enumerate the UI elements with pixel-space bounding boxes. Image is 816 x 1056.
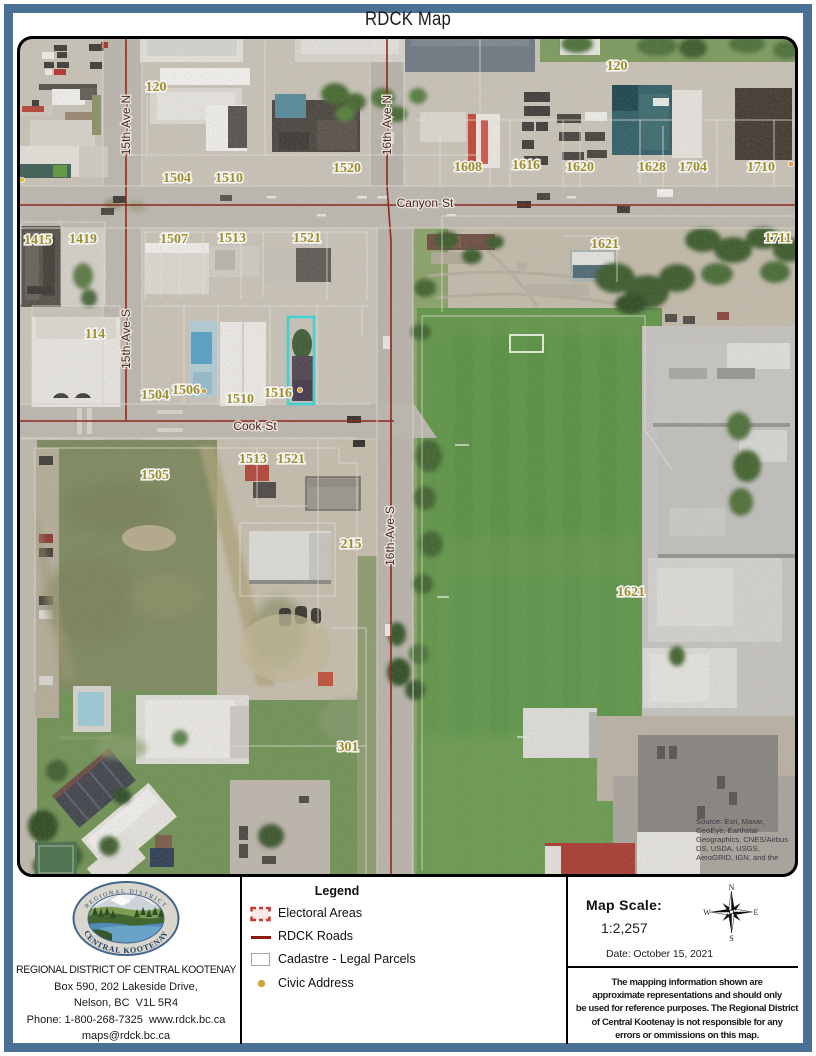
- svg-text:E: E: [754, 908, 759, 917]
- svg-text:W: W: [703, 908, 711, 917]
- svg-text:Source: Esri, Maxar,: Source: Esri, Maxar,: [696, 817, 764, 826]
- svg-text:AeroGRID, IGN, and the: AeroGRID, IGN, and the: [696, 853, 778, 862]
- svg-text:Geographics, CNES/Airbus: Geographics, CNES/Airbus: [696, 835, 788, 844]
- svg-text:DS, USDA, USGS,: DS, USDA, USGS,: [696, 844, 760, 853]
- svg-text:N: N: [729, 883, 735, 892]
- svg-text:S: S: [729, 934, 733, 943]
- svg-text:GeoEye, Earthstar: GeoEye, Earthstar: [696, 826, 759, 835]
